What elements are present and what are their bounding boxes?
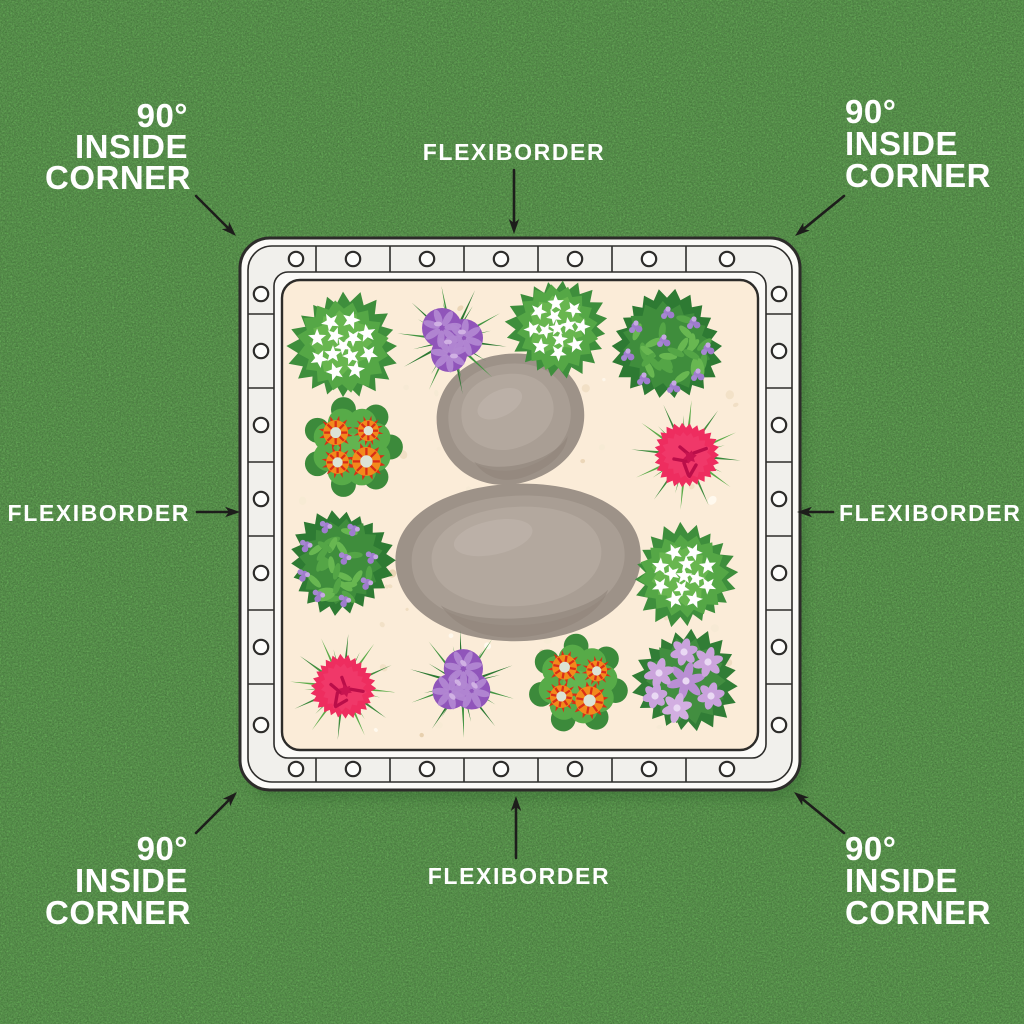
screw-hole: [254, 344, 268, 358]
screw-hole: [254, 566, 268, 580]
screw-hole: [420, 762, 434, 776]
screw-hole: [772, 492, 786, 506]
screw-hole: [772, 344, 786, 358]
screw-hole: [346, 252, 360, 266]
corner-label-line: CORNER: [45, 894, 191, 931]
screw-hole: [642, 252, 656, 266]
screw-hole: [254, 640, 268, 654]
screw-hole: [568, 762, 582, 776]
screw-hole: [720, 762, 734, 776]
screw-hole: [642, 762, 656, 776]
corner-label-line: CORNER: [845, 157, 991, 194]
label-flexiborder-top: FLEXIBORDER: [423, 139, 605, 165]
screw-hole: [494, 762, 508, 776]
screw-hole: [254, 418, 268, 432]
corner-label-line: CORNER: [45, 159, 191, 196]
screw-hole: [346, 762, 360, 776]
screw-hole: [772, 566, 786, 580]
screw-hole: [720, 252, 734, 266]
label-flexiborder-bottom: FLEXIBORDER: [428, 863, 610, 889]
screw-hole: [772, 418, 786, 432]
screw-hole: [568, 252, 582, 266]
screw-hole: [289, 762, 303, 776]
screw-hole: [254, 492, 268, 506]
garden-bed-diagram: 90° INSIDE CORNER 90° INSIDE CORNER 90° …: [0, 0, 1024, 1024]
screw-hole: [772, 640, 786, 654]
screw-hole: [254, 287, 268, 301]
screw-hole: [772, 718, 786, 732]
screw-hole: [254, 718, 268, 732]
screw-hole: [494, 252, 508, 266]
screw-hole: [772, 287, 786, 301]
screw-hole: [420, 252, 434, 266]
screw-hole: [289, 252, 303, 266]
label-flexiborder-left: FLEXIBORDER: [8, 500, 190, 526]
label-flexiborder-right: FLEXIBORDER: [839, 500, 1021, 526]
corner-label-line: CORNER: [845, 894, 991, 931]
